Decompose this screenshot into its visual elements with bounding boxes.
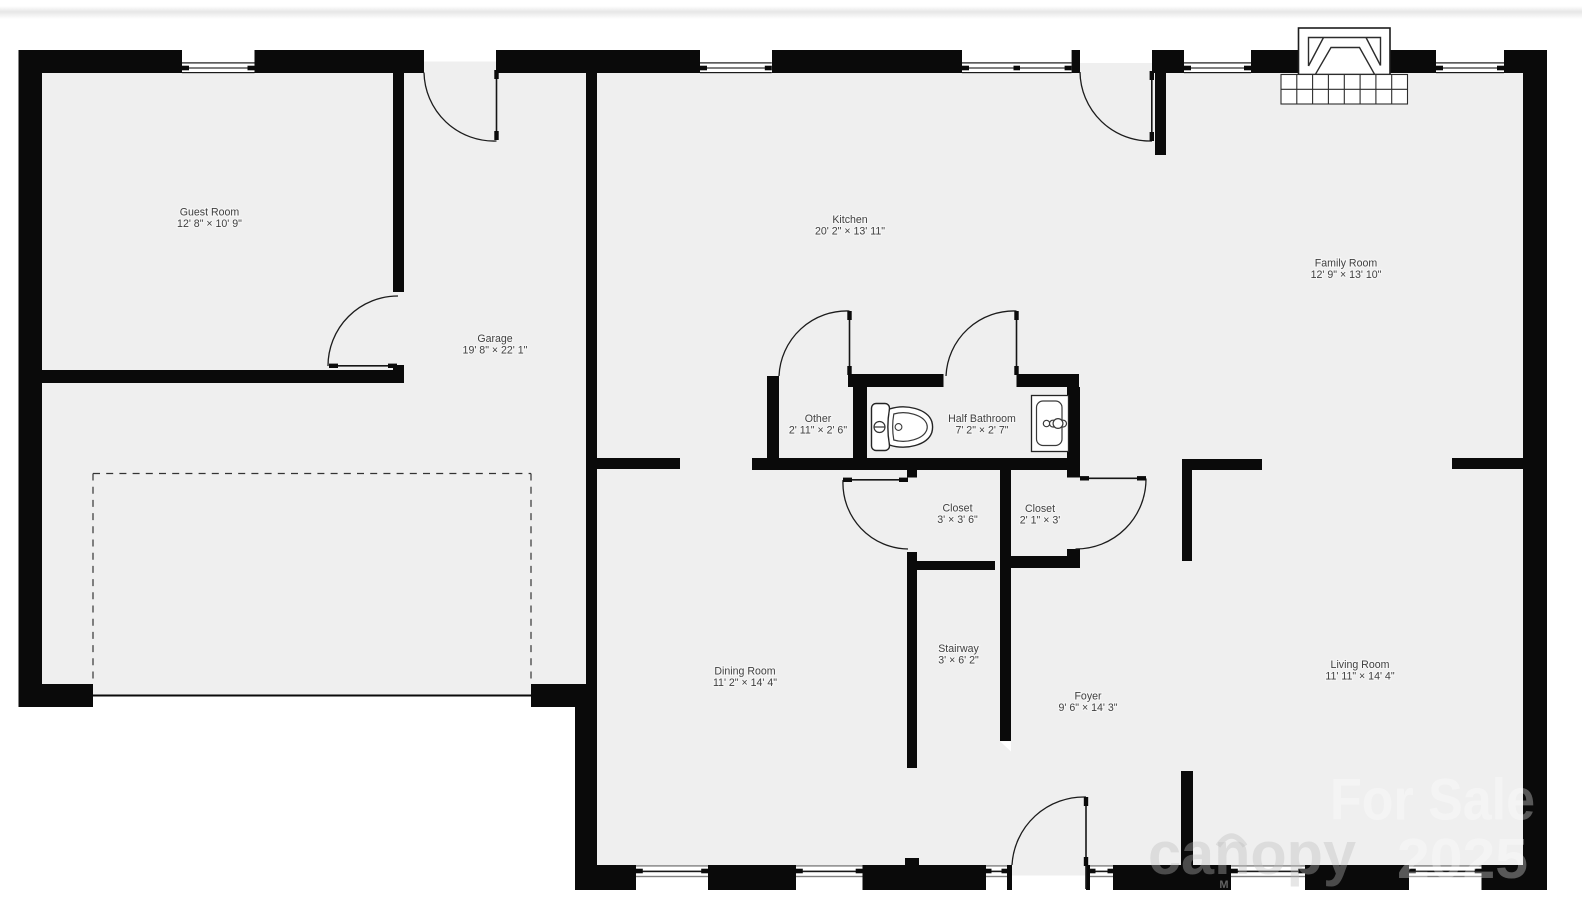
svg-text:20' 2" × 13' 11": 20' 2" × 13' 11" [815,226,885,238]
svg-text:Half Bathroom: Half Bathroom [948,413,1016,425]
svg-text:Family Room: Family Room [1315,258,1378,270]
svg-text:19' 8" × 22' 1": 19' 8" × 22' 1" [463,345,528,357]
svg-text:Closet: Closet [942,503,972,515]
svg-text:canopy: canopy [1148,820,1357,887]
svg-text:Closet: Closet [1025,503,1055,515]
svg-text:For Sale: For Sale [1330,768,1535,833]
svg-text:2' 1" × 3': 2' 1" × 3' [1020,515,1061,527]
svg-text:2025: 2025 [1397,827,1528,891]
svg-text:7' 2" × 2' 7": 7' 2" × 2' 7" [955,425,1008,437]
svg-text:3' × 6' 2": 3' × 6' 2" [938,655,979,667]
svg-text:Kitchen: Kitchen [832,214,867,226]
svg-text:2' 11" × 2' 6": 2' 11" × 2' 6" [789,425,847,437]
svg-text:Living Room: Living Room [1331,659,1390,671]
svg-text:M: M [1219,879,1228,891]
svg-text:11' 11" × 14' 4": 11' 11" × 14' 4" [1325,671,1394,683]
svg-text:12' 9" × 13' 10": 12' 9" × 13' 10" [1311,269,1382,281]
svg-text:Dining Room: Dining Room [714,666,775,678]
svg-text:9' 6" × 14' 3": 9' 6" × 14' 3" [1059,702,1118,714]
svg-text:Guest Room: Guest Room [180,206,240,218]
svg-text:Stairway: Stairway [938,643,979,655]
svg-text:11' 2" × 14' 4": 11' 2" × 14' 4" [713,677,777,689]
svg-text:3' × 3' 6": 3' × 3' 6" [937,514,978,526]
svg-text:Garage: Garage [477,333,512,345]
svg-text:12' 8" × 10' 9": 12' 8" × 10' 9" [177,218,242,230]
svg-text:Other: Other [805,413,832,425]
svg-text:Foyer: Foyer [1074,691,1102,703]
